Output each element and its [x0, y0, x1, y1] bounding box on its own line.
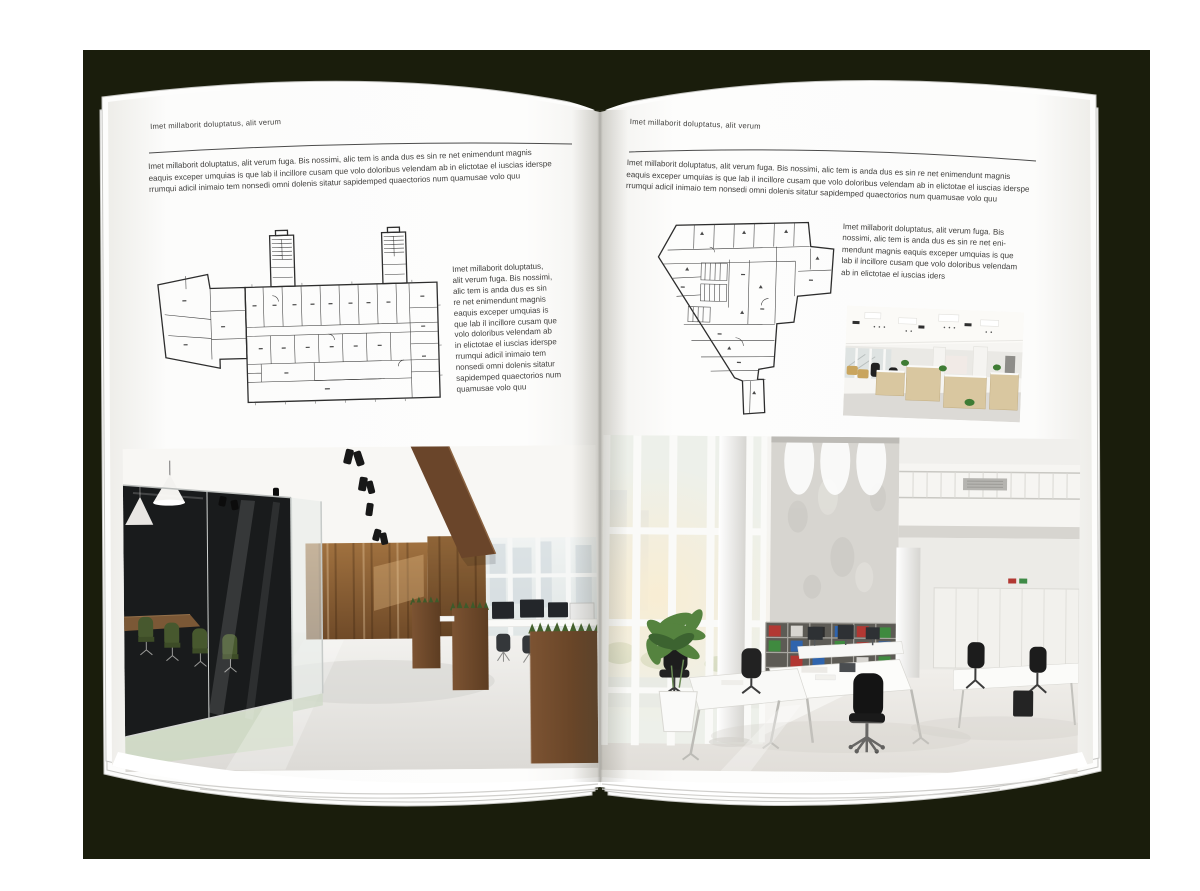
glass-meeting-room	[123, 459, 323, 737]
left-caption-paragraph: Imet millaborit doluptatus, alit verum f…	[452, 261, 562, 396]
right-caption-paragraph: Imet millaborit doluptatus, alit verum f…	[841, 221, 1019, 284]
office-photo-small	[843, 306, 1024, 423]
floor-plan-right	[646, 216, 847, 421]
floor-plan-left	[150, 225, 447, 419]
magazine-mockup-scene: Imet millaborit doluptatus, alit verum I…	[0, 0, 1200, 891]
round-column-2	[895, 547, 920, 677]
concrete-wall	[770, 435, 900, 630]
office-photo-right	[601, 435, 1081, 774]
office-photo-left	[123, 445, 599, 772]
